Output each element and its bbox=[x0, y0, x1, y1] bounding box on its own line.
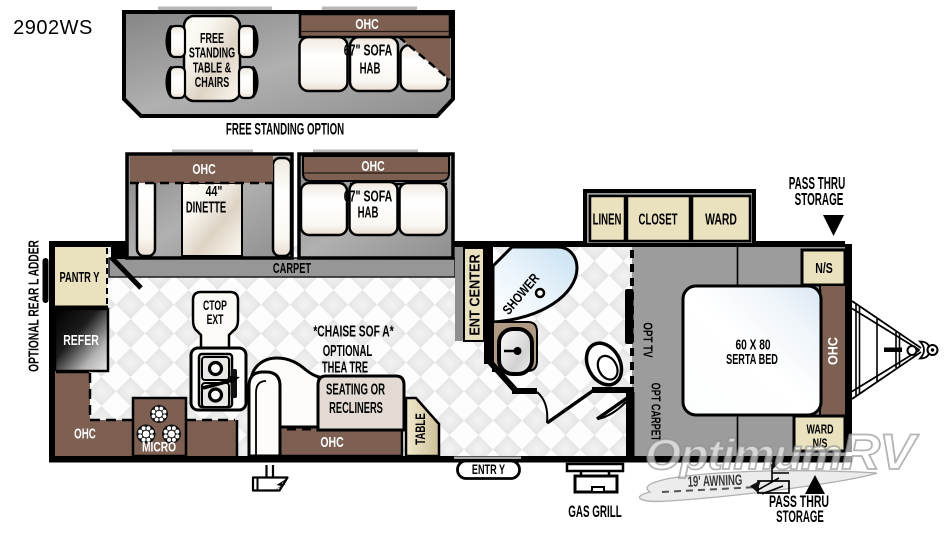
svg-text:PANTR Y: PANTR Y bbox=[60, 269, 100, 286]
svg-text:*CHAISE SOF A*: *CHAISE SOF A* bbox=[313, 322, 394, 340]
svg-text:OHC: OHC bbox=[825, 337, 841, 365]
svg-text:2902WS: 2902WS bbox=[13, 17, 93, 39]
svg-text:HAB: HAB bbox=[358, 203, 379, 221]
svg-text:67" SOFA: 67" SOFA bbox=[344, 41, 393, 59]
svg-text:N/S: N/S bbox=[815, 259, 833, 276]
svg-text:CLOSET: CLOSET bbox=[639, 210, 678, 228]
svg-text:MICRO: MICRO bbox=[142, 439, 176, 455]
svg-text:OptimumRV: OptimumRV bbox=[645, 425, 920, 481]
svg-text:THEA TRE: THEA TRE bbox=[322, 358, 368, 376]
svg-text:CHAIRS: CHAIRS bbox=[195, 74, 229, 91]
svg-text:SEATING OR: SEATING OR bbox=[326, 380, 386, 398]
svg-text:SERTA BED: SERTA BED bbox=[726, 351, 778, 368]
svg-text:OHC: OHC bbox=[355, 15, 378, 32]
svg-text:OPTIONAL: OPTIONAL bbox=[323, 341, 373, 359]
svg-text:HAB: HAB bbox=[360, 59, 381, 77]
svg-text:EXT: EXT bbox=[207, 312, 224, 328]
svg-text:LINEN: LINEN bbox=[593, 210, 622, 228]
svg-text:OHC: OHC bbox=[320, 433, 343, 450]
svg-text:STORAGE: STORAGE bbox=[795, 190, 844, 210]
svg-text:GAS GRILL: GAS GRILL bbox=[568, 501, 622, 521]
svg-text:OHC: OHC bbox=[192, 160, 215, 177]
svg-text:OHC: OHC bbox=[74, 426, 96, 443]
svg-text:CARPET: CARPET bbox=[273, 260, 311, 277]
svg-text:ENT CENTER: ENT CENTER bbox=[465, 254, 482, 335]
svg-text:DINETTE: DINETTE bbox=[186, 198, 227, 216]
svg-text:WARD: WARD bbox=[705, 210, 737, 228]
svg-text:FREE STANDING OPTION: FREE STANDING OPTION bbox=[226, 119, 344, 139]
svg-text:TABLE: TABLE bbox=[414, 413, 429, 445]
svg-text:OPTIONAL REAR L ADDER: OPTIONAL REAR L ADDER bbox=[24, 240, 42, 372]
svg-text:REFER: REFER bbox=[63, 331, 99, 348]
svg-text:STORAGE: STORAGE bbox=[776, 506, 824, 526]
svg-text:OPT TV: OPT TV bbox=[640, 322, 654, 357]
svg-text:ENTR Y: ENTR Y bbox=[472, 461, 505, 478]
svg-text:RECLINERS: RECLINERS bbox=[329, 398, 383, 416]
svg-text:OHC: OHC bbox=[361, 157, 384, 174]
